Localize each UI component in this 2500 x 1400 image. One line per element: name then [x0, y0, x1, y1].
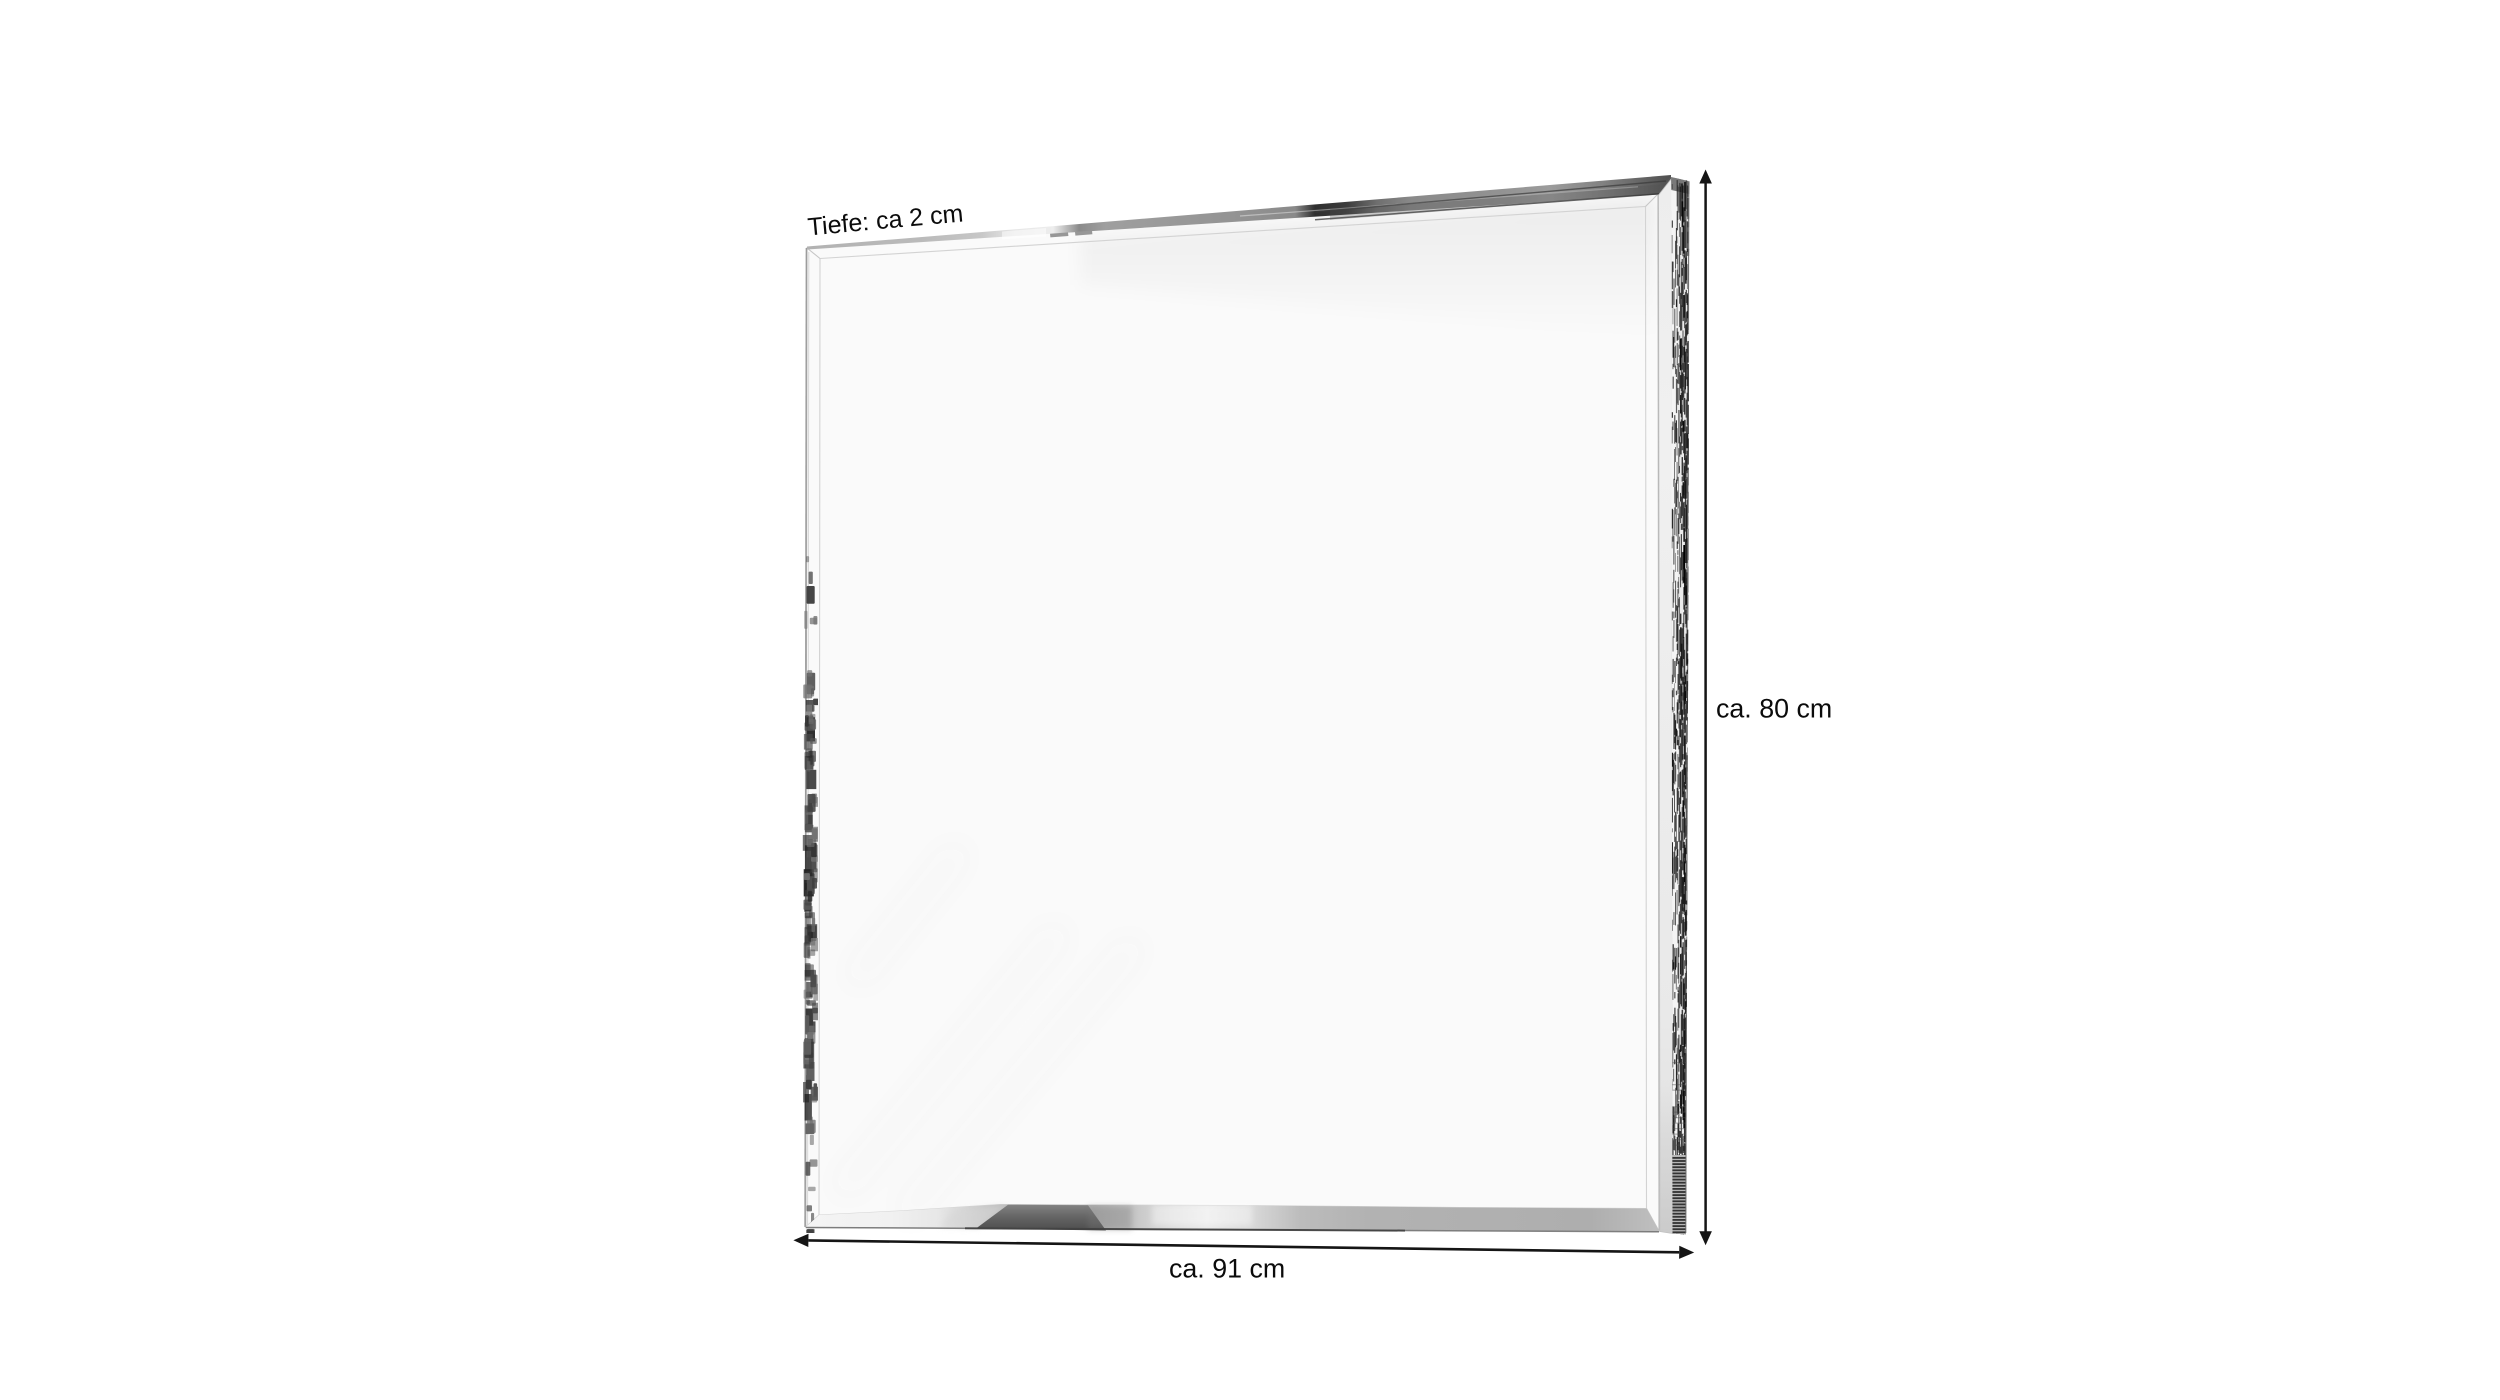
svg-text:Tiefe: ca 2 cm: Tiefe: ca 2 cm	[807, 199, 965, 241]
svg-text:ca. 91 cm: ca. 91 cm	[1169, 1254, 1285, 1284]
svg-text:ca. 80 cm: ca. 80 cm	[1716, 694, 1832, 724]
